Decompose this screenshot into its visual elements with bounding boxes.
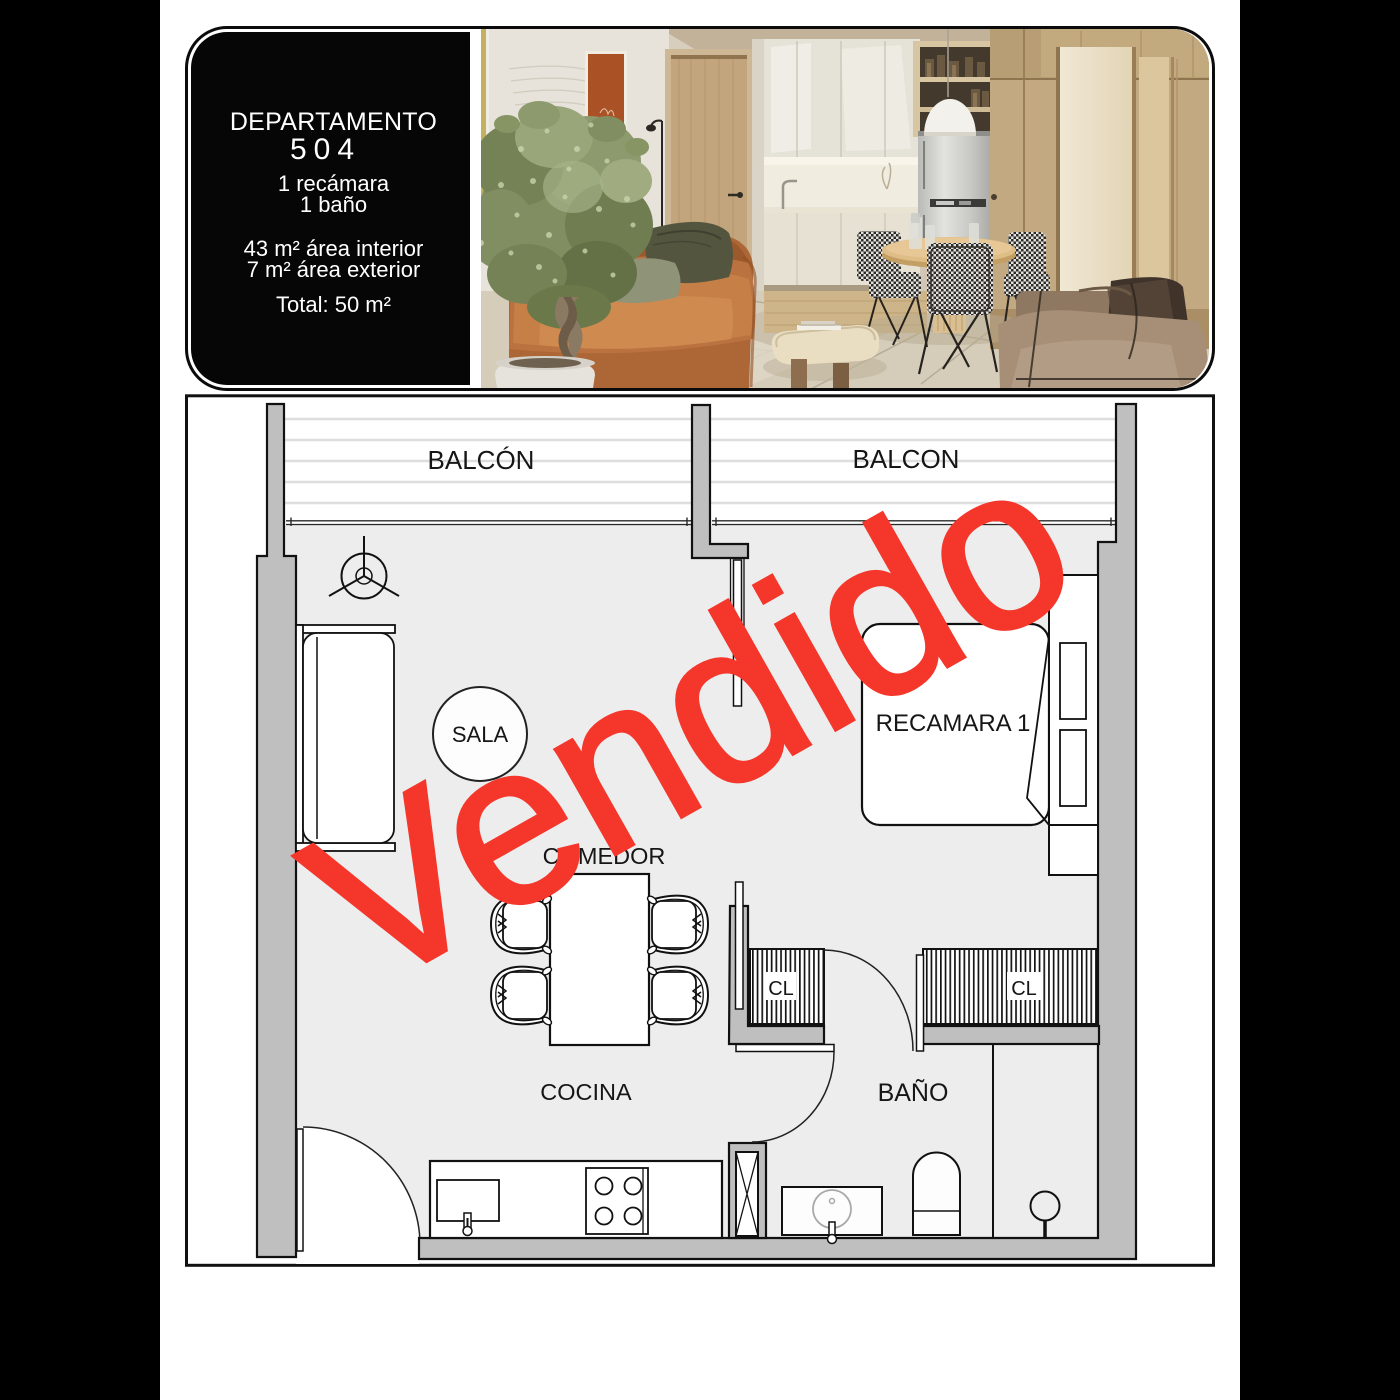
svg-text:Vendido: Vendido [269,409,1111,1036]
